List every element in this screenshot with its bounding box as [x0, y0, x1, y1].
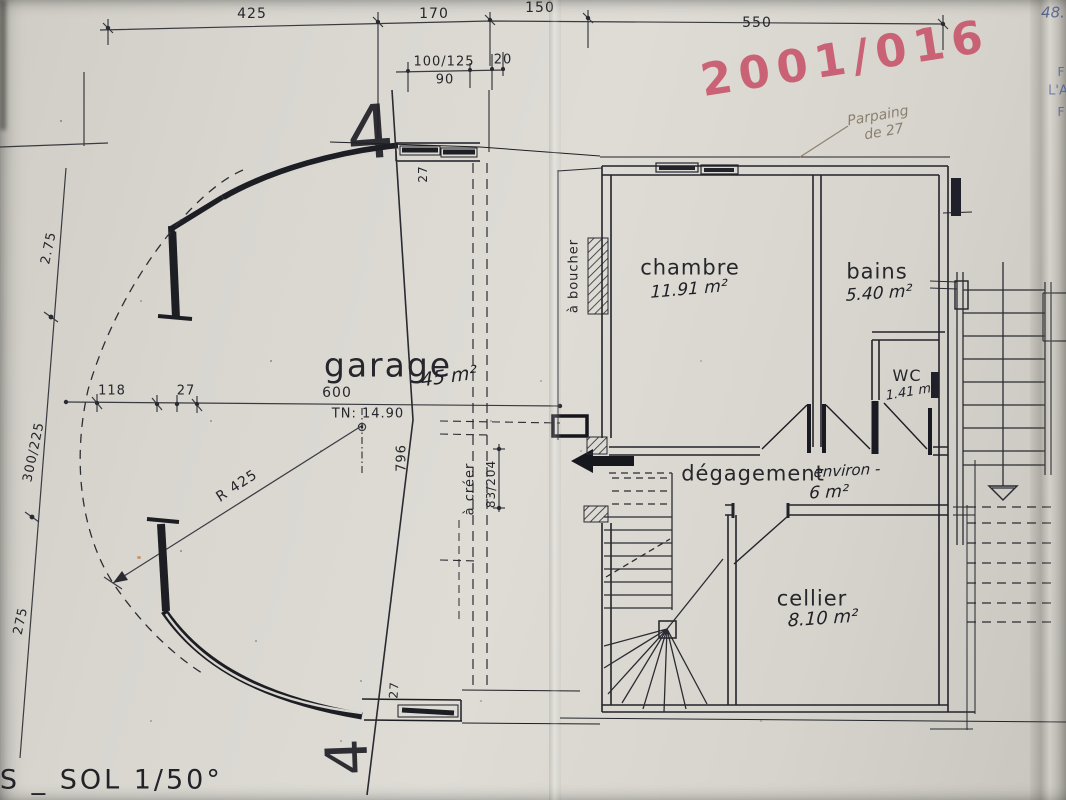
blue-print-fragment-2: L'A: [1048, 85, 1066, 98]
blue-handwritten-number: 48.: [1041, 6, 1065, 21]
section-marker-4-top: 4: [344, 94, 396, 171]
dim-sub-90: 90: [436, 74, 455, 87]
room-label-degagement: dégagement: [681, 464, 825, 485]
dim-top-150: 150: [525, 1, 555, 15]
garage-wall-inner-gaps: [166, 150, 398, 714]
page-edge-shadow: [0, 0, 6, 130]
exterior-stairs: [930, 262, 1066, 730]
dim-garage-600: 600: [322, 386, 352, 400]
scanned-floorplan-page: 425 170 150 550 100/125 90 20 2001/016 4…: [0, 0, 1066, 800]
blue-print-fragment-1: F: [1058, 66, 1065, 78]
garage-walls: [147, 142, 600, 724]
dim-sub-20: 20: [494, 54, 513, 67]
dim-wall-27-top: 27: [417, 165, 429, 182]
paper-speck-orange: [137, 556, 141, 559]
corridor-entry: [367, 90, 634, 795]
dim-garage-796: 796: [396, 444, 409, 472]
dim-top-425: 425: [237, 7, 267, 21]
room-qualifier-degagement: environ -: [813, 462, 881, 481]
annotation-a-creer: à créer: [464, 463, 477, 516]
room-label-wc: WC: [893, 368, 922, 384]
dim-wall-27-bottom: 27: [387, 681, 400, 699]
paper-specks: [60, 120, 62, 122]
blue-print-fragment-3: F: [1058, 106, 1065, 118]
room-area-cellier: 8.10 m²: [787, 607, 858, 630]
room-area-degagement: 6 m²: [809, 483, 849, 502]
dim-sub-100-125: 100/125: [413, 56, 474, 69]
room-area-bains: 5.40 m²: [845, 283, 912, 305]
annotation-a-boucher: à boucher: [568, 239, 581, 313]
dim-opening-83-204: 83/204: [485, 460, 497, 508]
section-marker-4-bottom: 4: [317, 738, 376, 777]
room-label-bains: bains: [846, 262, 907, 283]
dim-top-170: 170: [419, 7, 449, 21]
pencil-arrow: [800, 126, 848, 157]
annotation-tn-level: TN: 14.90: [332, 408, 404, 421]
dim-top-550: 550: [742, 16, 772, 30]
door-swings: [762, 401, 930, 455]
interior-stairs: [604, 473, 723, 712]
dim-garage-118: 118: [98, 385, 126, 398]
dim-garage-27: 27: [177, 385, 196, 398]
sheet-title: US _ SOL 1/50°: [0, 767, 223, 794]
